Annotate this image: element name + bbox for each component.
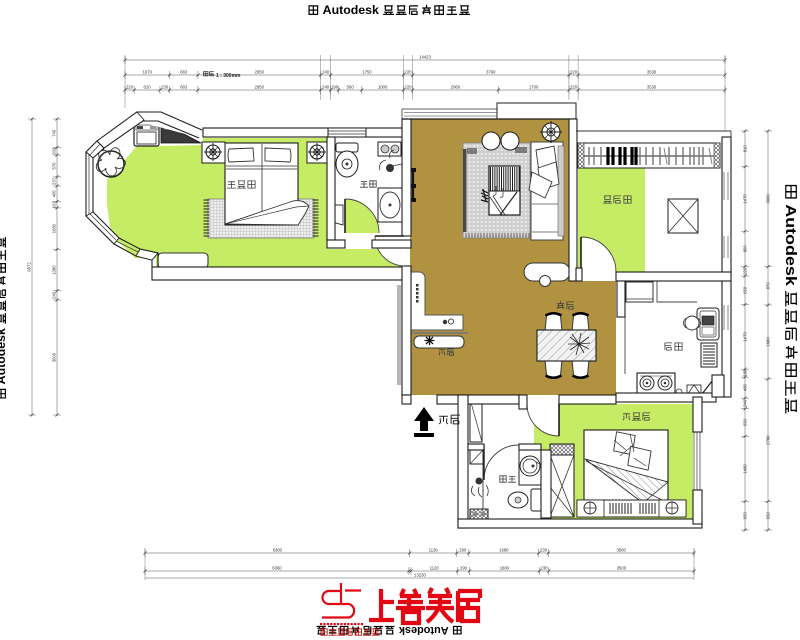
svg-text:1470: 1470 <box>743 332 748 342</box>
svg-text:683: 683 <box>180 85 188 90</box>
svg-text:6360: 6360 <box>272 566 282 571</box>
svg-text:220: 220 <box>570 70 578 75</box>
svg-text:2950: 2950 <box>255 85 265 90</box>
svg-text:220: 220 <box>743 267 748 275</box>
svg-text:630: 630 <box>743 418 748 426</box>
svg-text:3530: 3530 <box>647 70 657 75</box>
svg-text:810: 810 <box>743 145 748 153</box>
svg-text:230: 230 <box>540 566 548 571</box>
svg-text:1680: 1680 <box>766 337 771 347</box>
svg-text:800: 800 <box>743 245 748 253</box>
svg-text:220: 220 <box>405 70 413 75</box>
svg-text:180: 180 <box>743 369 748 377</box>
svg-text:240: 240 <box>322 85 330 90</box>
svg-text:2780: 2780 <box>766 435 771 445</box>
svg-text:200: 200 <box>52 147 57 155</box>
svg-text:220: 220 <box>126 85 134 90</box>
svg-text:1080: 1080 <box>52 223 57 233</box>
svg-text:240: 240 <box>322 70 330 75</box>
svg-text:1480: 1480 <box>743 464 748 474</box>
svg-text:240: 240 <box>51 291 56 299</box>
svg-text:1130: 1130 <box>429 548 439 553</box>
svg-text:3760: 3760 <box>486 70 496 75</box>
svg-text:Autodesk: Autodesk <box>782 204 799 286</box>
svg-text:220: 220 <box>405 85 413 90</box>
svg-text:1070: 1070 <box>143 70 153 75</box>
svg-text:13230: 13230 <box>414 573 426 578</box>
svg-text:405: 405 <box>52 190 57 198</box>
svg-text:1 : 300mm: 1 : 300mm <box>216 73 241 79</box>
svg-text:620: 620 <box>144 85 152 90</box>
svg-text:1680: 1680 <box>500 566 510 571</box>
svg-text:3080: 3080 <box>766 193 771 203</box>
svg-text:560: 560 <box>347 85 355 90</box>
svg-text:290: 290 <box>460 566 468 571</box>
svg-text:237: 237 <box>52 177 57 185</box>
svg-text:2950: 2950 <box>255 70 265 75</box>
svg-text:Autodesk: Autodesk <box>398 624 449 636</box>
svg-text:6872: 6872 <box>27 262 32 272</box>
svg-text:3530: 3530 <box>647 85 657 90</box>
svg-text:1680: 1680 <box>499 548 509 553</box>
svg-text:290: 290 <box>459 548 467 553</box>
svg-text:1700: 1700 <box>529 85 539 90</box>
svg-text:230: 230 <box>161 85 169 90</box>
svg-text:650: 650 <box>743 286 748 294</box>
svg-text:167: 167 <box>52 201 57 209</box>
svg-text:1080: 1080 <box>52 265 57 275</box>
svg-text:480: 480 <box>743 383 748 391</box>
svg-text:1470: 1470 <box>743 194 748 204</box>
svg-text:Autodesk: Autodesk <box>0 328 8 384</box>
svg-text:2060: 2060 <box>451 85 461 90</box>
svg-text:1120: 1120 <box>430 566 440 571</box>
svg-text:Autodesk: Autodesk <box>323 3 379 17</box>
svg-text:6360: 6360 <box>273 548 283 553</box>
svg-text:683: 683 <box>180 70 188 75</box>
svg-text:190: 190 <box>331 85 339 90</box>
svg-text:3000: 3000 <box>52 352 57 362</box>
svg-text:740: 740 <box>52 129 57 137</box>
svg-text:230: 230 <box>540 548 548 553</box>
svg-text:570: 570 <box>52 162 57 170</box>
svg-text:240: 240 <box>743 399 748 407</box>
svg-text:870: 870 <box>766 282 771 290</box>
svg-text:14423: 14423 <box>419 55 431 60</box>
svg-text:3500: 3500 <box>617 566 627 571</box>
svg-text:3500: 3500 <box>616 548 626 553</box>
svg-text:650: 650 <box>766 512 771 520</box>
svg-text:1750: 1750 <box>362 70 372 75</box>
svg-text:220: 220 <box>570 85 578 90</box>
svg-text:650: 650 <box>743 512 748 520</box>
svg-text:1000: 1000 <box>378 85 388 90</box>
